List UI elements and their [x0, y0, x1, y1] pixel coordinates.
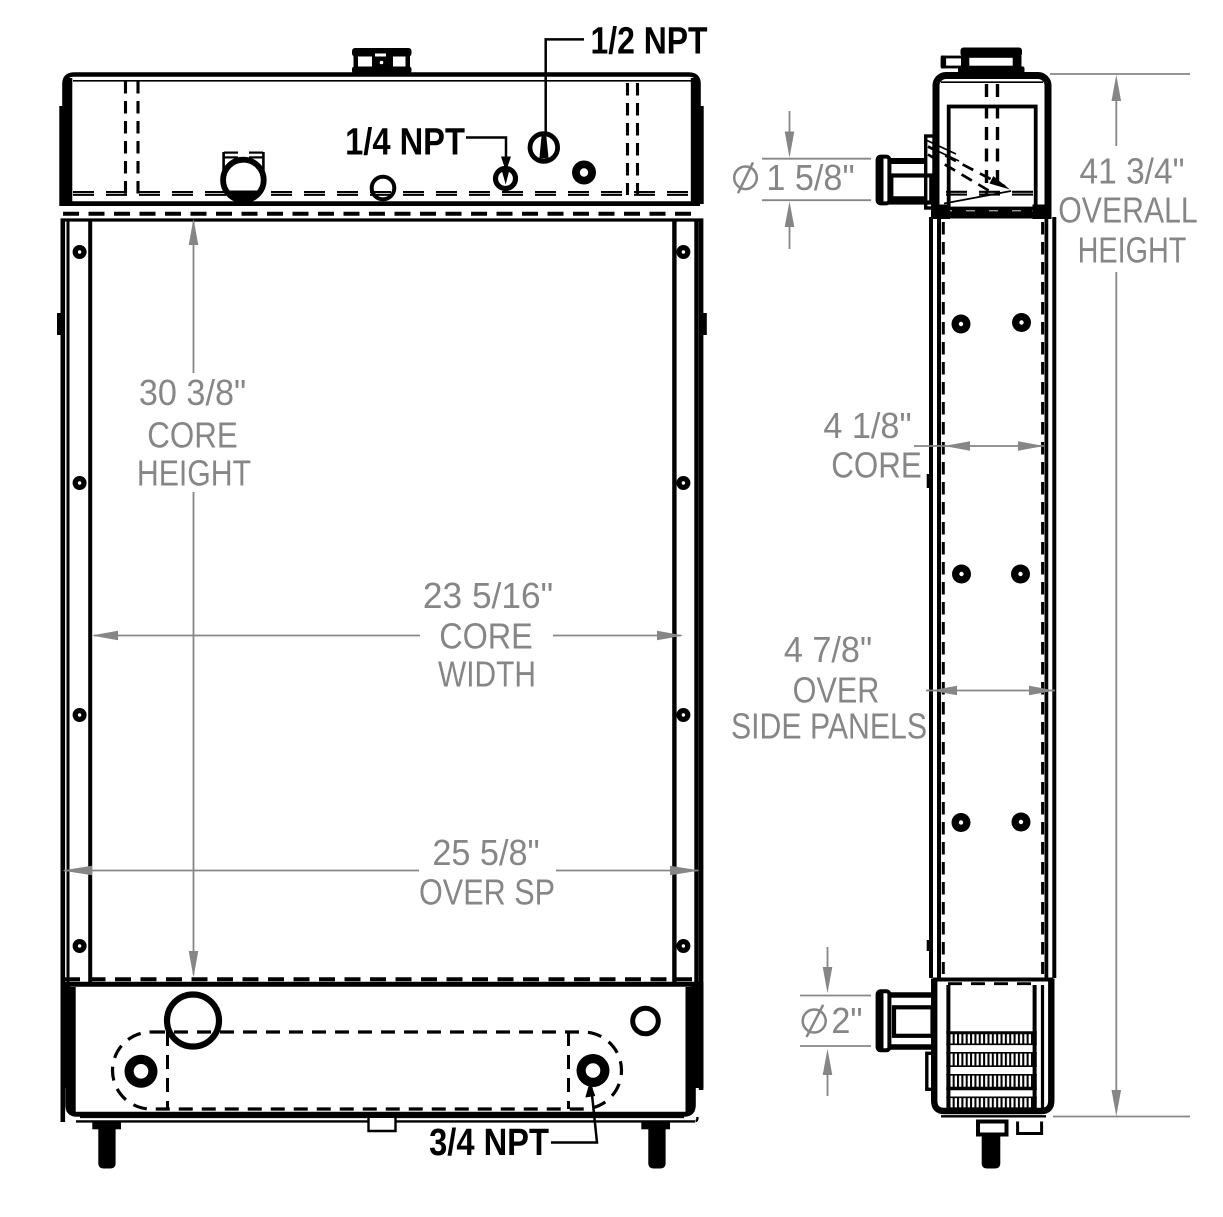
- svg-text:OVERALL: OVERALL: [1058, 191, 1197, 231]
- svg-text:CORE: CORE: [831, 446, 921, 487]
- svg-text:4 1/8": 4 1/8": [823, 406, 911, 446]
- svg-text:1 5/8": 1 5/8": [766, 158, 854, 198]
- svg-text:3/4 NPT: 3/4 NPT: [429, 1121, 549, 1164]
- svg-text:WIDTH: WIDTH: [438, 655, 536, 695]
- svg-text:41 3/4": 41 3/4": [1080, 152, 1185, 191]
- svg-text:OVER: OVER: [793, 671, 880, 711]
- svg-text:HEIGHT: HEIGHT: [137, 454, 251, 494]
- svg-text:SIDE PANELS: SIDE PANELS: [731, 707, 927, 747]
- svg-text:OVER SP: OVER SP: [419, 873, 555, 913]
- svg-text:23 5/16": 23 5/16": [423, 576, 553, 616]
- svg-text:30 3/8": 30 3/8": [139, 373, 246, 413]
- svg-text:CORE: CORE: [147, 416, 237, 457]
- svg-text:CORE: CORE: [439, 617, 533, 657]
- svg-text:25 5/8": 25 5/8": [432, 833, 539, 873]
- svg-text:1/4 NPT: 1/4 NPT: [345, 120, 465, 163]
- svg-text:2": 2": [831, 1001, 862, 1041]
- svg-text:HEIGHT: HEIGHT: [1078, 230, 1187, 271]
- svg-text:1/2 NPT: 1/2 NPT: [590, 20, 708, 62]
- svg-text:4 7/8": 4 7/8": [784, 630, 872, 670]
